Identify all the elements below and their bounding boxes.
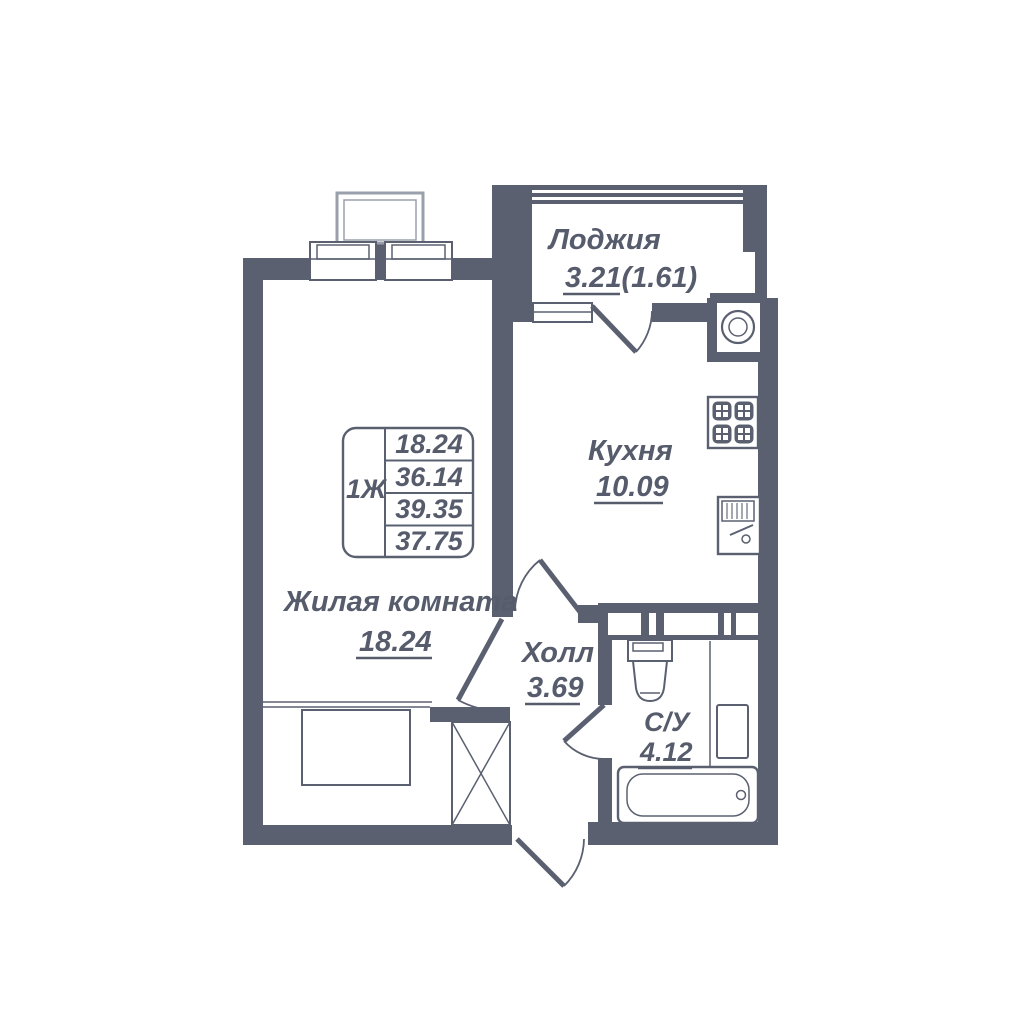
kitchen-door (515, 560, 580, 612)
kitchen-label: Кухня (588, 435, 673, 467)
washbasin-icon (717, 705, 748, 758)
stamp-apartment-type: 1Ж (346, 474, 388, 504)
wall-washer-niche-left (707, 298, 717, 360)
loggia-label: Лоджия (547, 224, 661, 256)
burner-dot (745, 405, 750, 410)
burner-dot (738, 428, 743, 433)
wall-loggia-bottom-right (652, 303, 715, 322)
burner (713, 402, 732, 421)
toilet-icon (628, 640, 672, 701)
wall-washer-niche-top (710, 293, 767, 303)
wall-bathroom-left-lower (598, 758, 612, 822)
hall-area: 3.69 (527, 672, 583, 704)
living-room-door (458, 619, 502, 711)
wall-top-mid (376, 242, 385, 280)
kitchen-sink-icon (718, 497, 760, 554)
burner-dot (716, 428, 721, 433)
wall-right-outer (758, 298, 778, 845)
area-stamp: 1Ж 18.24 36.14 39.35 37.75 (343, 428, 473, 557)
toilet-bowl (633, 661, 667, 701)
bathroom-area: 4.12 (639, 737, 693, 767)
stamp-value-3: 39.35 (395, 494, 464, 524)
living-room-area: 18.24 (359, 626, 432, 658)
wall-washer-niche-bottom (707, 352, 770, 362)
burner-dot (738, 435, 743, 440)
wall-top-left (243, 258, 310, 280)
living-room-door-leaf (458, 619, 502, 700)
entrance-door (517, 839, 584, 886)
vent-duct-slit-2 (724, 613, 731, 635)
bed-icon (262, 702, 432, 785)
burner-dot (723, 405, 728, 410)
stamp-value-2: 36.14 (395, 462, 463, 492)
wall-living-kitchen (492, 258, 513, 617)
entrance-door-arc (564, 839, 584, 886)
burner-dot (716, 405, 721, 410)
loggia-area: 3.21(1.61) (565, 262, 697, 294)
balcony-door-leaf (592, 306, 636, 352)
wall-wardrobe-top-bar (430, 707, 510, 722)
wall-bottom-left (243, 825, 512, 845)
bed-body (302, 710, 410, 785)
bathtub-icon (618, 767, 758, 823)
wardrobe-icon (452, 722, 510, 825)
vent-duct-3 (736, 613, 758, 635)
burner (713, 425, 732, 444)
burner-dot (723, 435, 728, 440)
burner-dot (738, 412, 743, 417)
burner-dot (745, 428, 750, 433)
burner (735, 402, 754, 421)
balcony-door-arc (636, 311, 652, 352)
floor-plan-drawing: 1Ж 18.24 36.14 39.35 37.75 Лоджия 3.21(1… (0, 0, 1024, 1024)
vent-duct-2 (664, 613, 718, 635)
wall-kitchen-hall-seg (578, 605, 598, 623)
entrance-door-leaf (517, 839, 564, 886)
living-window-2 (385, 242, 452, 280)
bathroom-label: С/У (644, 707, 691, 737)
vent-duct-1 (608, 613, 641, 635)
kitchen-area: 10.09 (596, 471, 669, 503)
kitchen-door-leaf (540, 560, 580, 612)
balcony-door (592, 306, 652, 352)
kitchen-door-arc (515, 560, 540, 611)
burner-dot (716, 435, 721, 440)
burner-dot (745, 412, 750, 417)
wall-bathroom-left-upper (598, 640, 612, 705)
windows (310, 193, 592, 322)
burner-dot (738, 405, 743, 410)
loggia-glazing-line-2 (532, 193, 743, 197)
wall-left-outer (243, 258, 263, 845)
vent-duct-slit-1 (649, 613, 656, 635)
wall-loggia-bottom-nub (513, 303, 533, 322)
stove-icon (708, 397, 758, 448)
burner-dot (723, 412, 728, 417)
stamp-value-4: 37.75 (395, 526, 464, 556)
burner (735, 425, 754, 444)
bathroom-door (564, 705, 604, 759)
loggia-glazing-line-3 (532, 200, 743, 204)
burner-dot (723, 428, 728, 433)
burner-dot (745, 435, 750, 440)
living-room-label: Жилая комната (282, 586, 517, 618)
hall-label: Холл (520, 637, 594, 669)
living-window-1 (310, 242, 376, 280)
loggia-glazing-line-1 (520, 185, 767, 190)
wall-bottom-right (588, 822, 778, 845)
stamp-value-1: 18.24 (395, 429, 463, 459)
wall-top-right (452, 258, 497, 280)
bathroom-door-leaf (564, 705, 604, 741)
floor-plan-page: 1Ж 18.24 36.14 39.35 37.75 Лоджия 3.21(1… (0, 0, 1024, 1024)
burner-dot (716, 412, 721, 417)
wall-loggia-right-upper (743, 185, 767, 252)
bathroom-door-arc (564, 741, 604, 759)
